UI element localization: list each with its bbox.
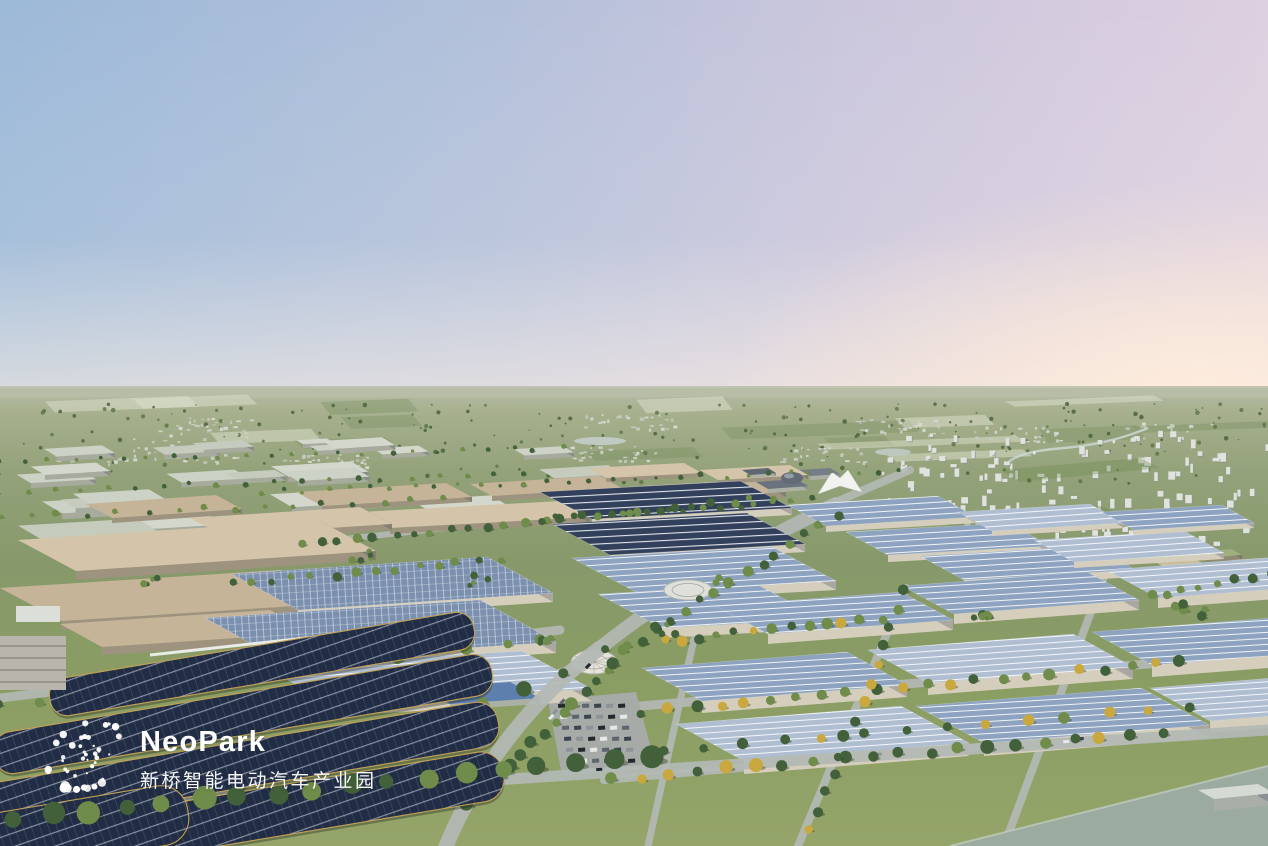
logo-text-block: NeoPark 新桥智能电动汽车产业园	[140, 728, 377, 808]
logo-wordmark: NeoPark	[140, 728, 377, 757]
logo-subtitle: 新桥智能电动汽车产业园	[140, 766, 377, 793]
neopark-logo: NeoPark 新桥智能电动汽车产业园	[40, 696, 377, 808]
aerial-rendering: NeoPark 新桥智能电动汽车产业园	[0, 0, 1268, 846]
dot-cluster-logo-icon	[40, 704, 132, 808]
